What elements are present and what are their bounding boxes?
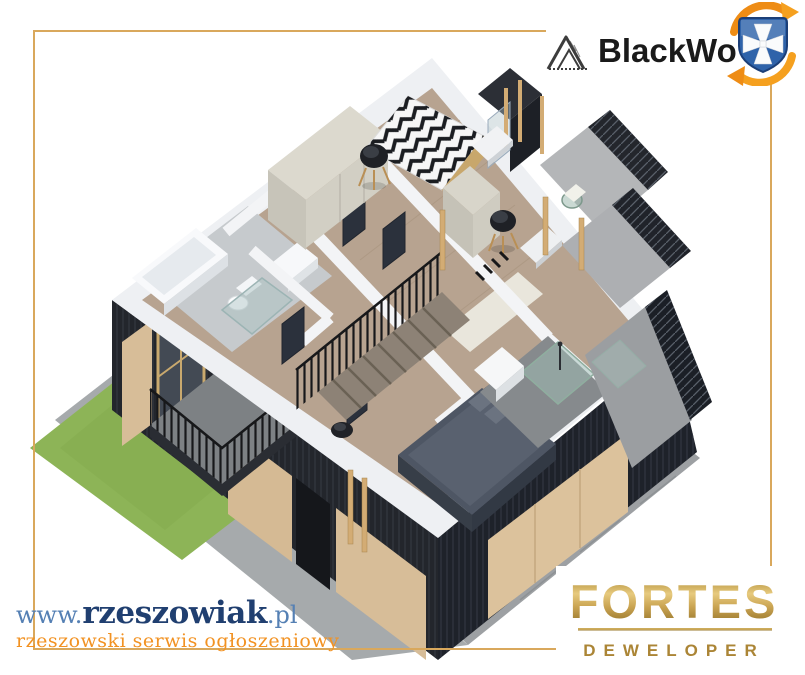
fortes-developer-logo: FORTES DEWELOPER xyxy=(556,566,805,675)
blackwood-wordmark: BlackWo xyxy=(598,32,737,70)
watermark-name: rzeszowiak xyxy=(82,595,266,631)
rzeszow-crest-badge-icon xyxy=(721,2,805,86)
watermark-tagline: rzeszowski serwis ogłoszeniowy xyxy=(16,632,339,651)
fortes-logo-art: FORTES DEWELOPER xyxy=(556,566,805,675)
mountain-peak-icon xyxy=(546,31,592,71)
fortes-divider xyxy=(578,628,772,631)
watermark-prefix: www. xyxy=(16,601,82,629)
gold-frame xyxy=(33,30,772,650)
rzeszowiak-watermark: www.rzeszowiak.pl rzeszowski serwis ogło… xyxy=(16,598,339,651)
fortes-subtitle: DEWELOPER xyxy=(583,641,765,660)
watermark-tld: .pl xyxy=(267,601,298,629)
fortes-wordmark: FORTES xyxy=(570,575,779,628)
listing-image: BlackWo www.rzeszowiak.pl rzeszowski ser… xyxy=(0,0,805,675)
